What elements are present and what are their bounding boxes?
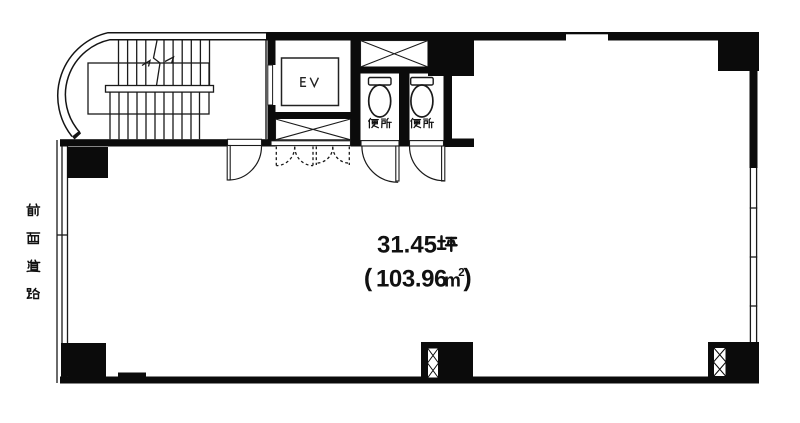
svg-text:(: ( <box>364 264 373 292</box>
svg-text:103.96: 103.96 <box>376 266 447 293</box>
svg-text:): ) <box>463 264 471 292</box>
svg-text:31.45: 31.45 <box>377 232 437 259</box>
